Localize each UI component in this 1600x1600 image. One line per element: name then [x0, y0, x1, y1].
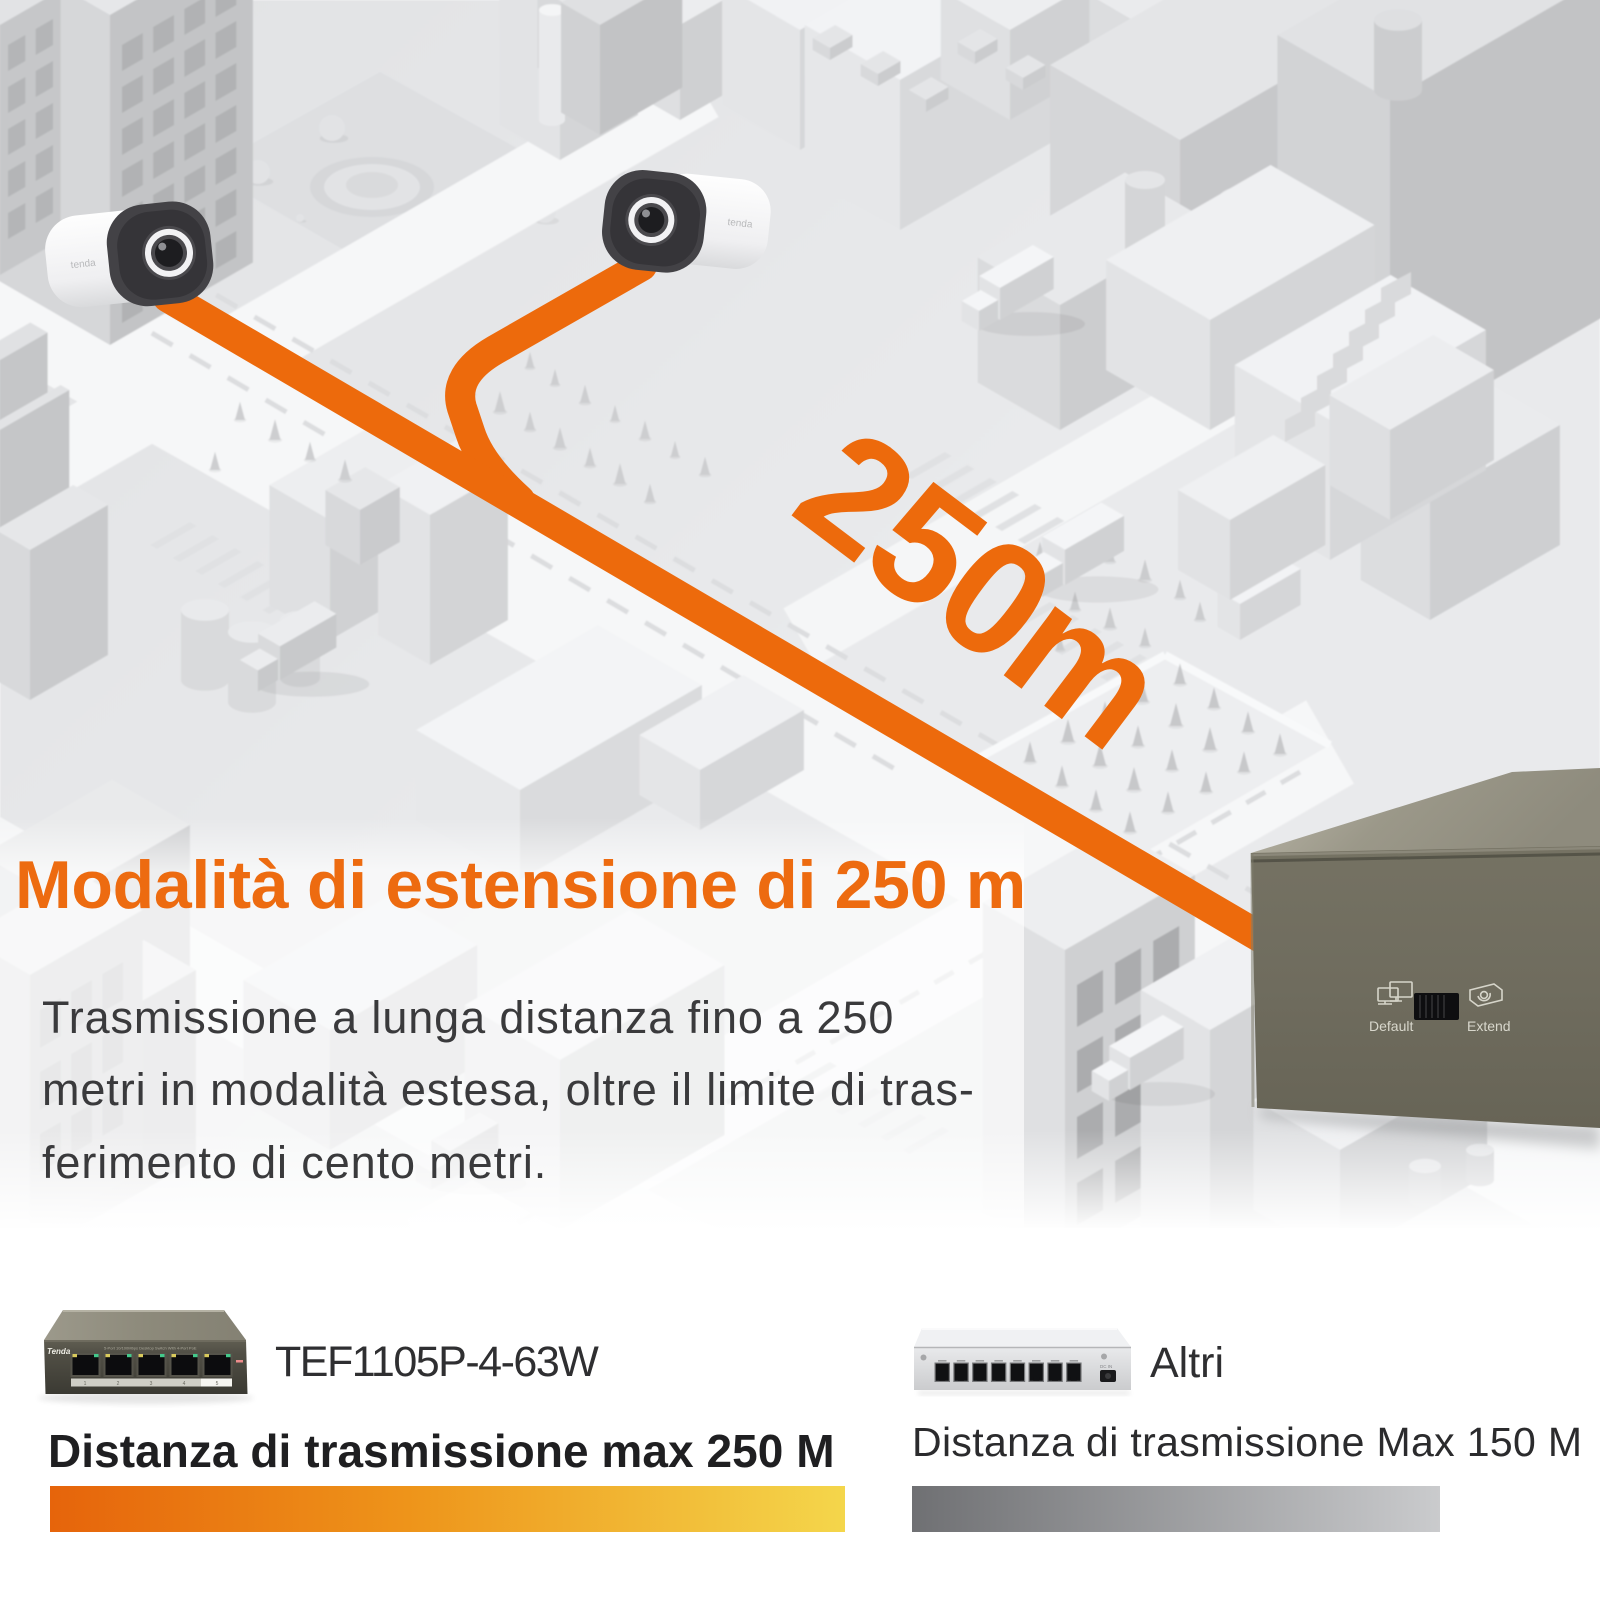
svg-text:Tenda: Tenda — [47, 1347, 71, 1356]
svg-text:3: 3 — [150, 1381, 153, 1387]
svg-text:Default: Default — [1369, 1018, 1413, 1034]
svg-text:5: 5 — [216, 1381, 219, 1387]
svg-text:5-Port 10/100Mbps Desktop Swi: 5-Port 10/100Mbps Desktop Switch With 4-… — [104, 1346, 197, 1351]
svg-text:DC IN: DC IN — [1100, 1364, 1112, 1369]
svg-text:4: 4 — [183, 1381, 186, 1387]
svg-text:2: 2 — [117, 1381, 120, 1387]
svg-text:1: 1 — [84, 1381, 87, 1387]
svg-text:Extend: Extend — [1467, 1018, 1511, 1034]
